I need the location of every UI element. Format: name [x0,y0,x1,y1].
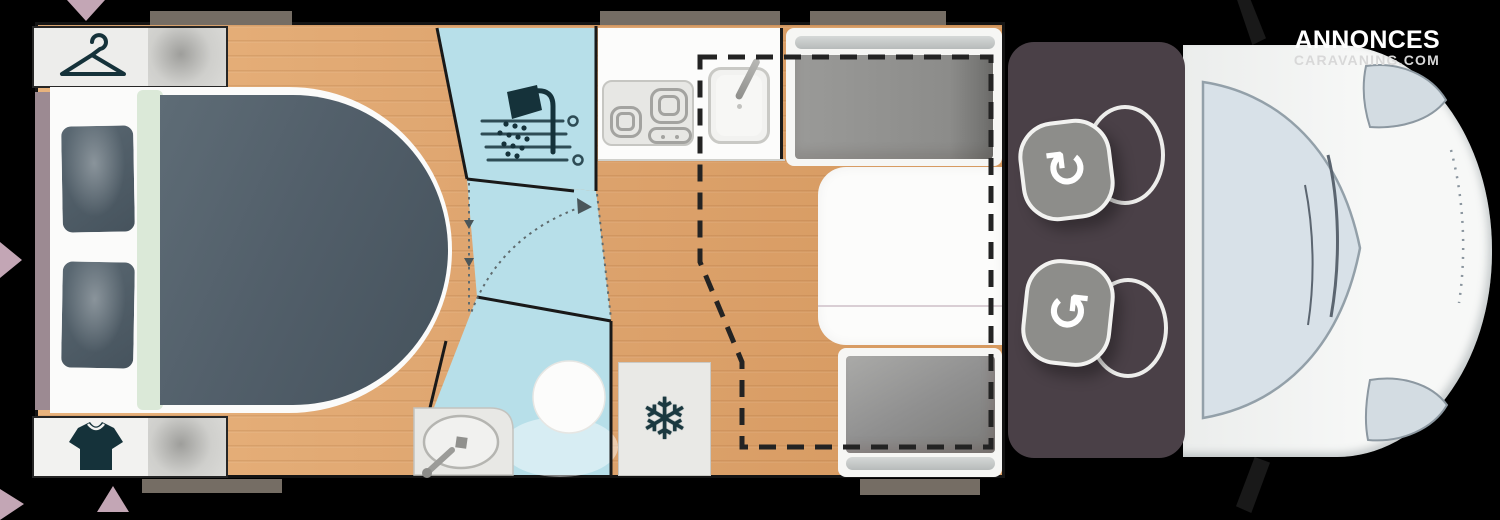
table-fold-line [818,305,1002,307]
dinette-table [818,167,1002,345]
kitchen-sink [708,67,770,144]
motorhome-floorplan: ❄ ↻ ↺ ANNONCES CARAVANING.COM [0,0,1500,520]
vehicle-front-glass [1183,45,1493,457]
toilet [533,361,605,433]
fridge: ❄ [618,362,711,476]
bench-top-cushion [795,55,993,159]
stove-knob [661,135,665,139]
bench-bottom-cushion [846,356,995,453]
watermark-line1: ANNONCES [1280,28,1440,53]
side-window-bottom [1366,379,1447,441]
watermark: ANNONCES CARAVANING.COM [1280,28,1440,68]
stove-knob [675,135,679,139]
bench-bottom-backrest [846,457,995,470]
sink-drain [737,104,742,109]
stove-controls [648,127,692,144]
burner-small-grate [616,112,635,131]
bench-top-backrest [795,36,995,49]
snowflake-icon: ❄ [640,390,689,448]
door-swing-tick [464,258,474,267]
burner-large-grate [658,95,680,116]
watermark-line2: CARAVANING.COM [1280,53,1440,68]
front-contour-dotted [1451,150,1463,303]
bathroom-sink [414,408,513,478]
stove [602,80,694,146]
side-window-top [1364,65,1446,127]
